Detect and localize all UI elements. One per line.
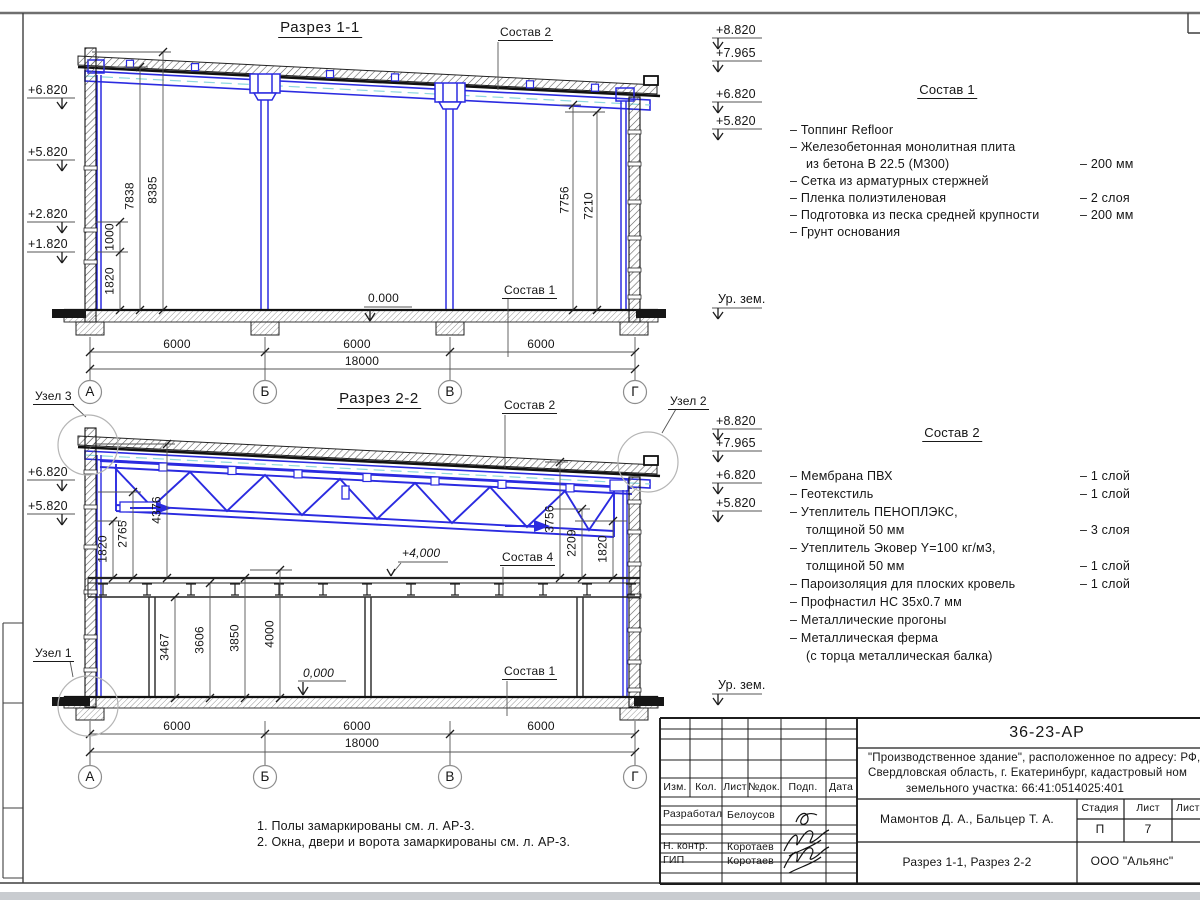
dim-label: 2765 xyxy=(117,520,130,548)
role-label: Н. контр. xyxy=(663,841,708,852)
dim-label: 1820 xyxy=(597,535,610,563)
list-item-value: – 1 слой xyxy=(1080,578,1130,591)
dim-label: 3850 xyxy=(229,624,242,652)
grid-bubble-label: А xyxy=(78,385,102,399)
dim-label: 1820 xyxy=(104,267,117,295)
dim-label: 1000 xyxy=(104,223,117,251)
elevation-label: +6.820 xyxy=(716,469,756,482)
list-item: – Пароизоляция для плоских кровель xyxy=(790,578,1015,591)
level-mark-label: +4,000 xyxy=(402,547,440,560)
revision-col-header: Кол. xyxy=(695,782,717,793)
list-item: – Металлическая ферма xyxy=(790,632,938,645)
authors-label: Мамонтов Д. А., Бальцер Т. А. xyxy=(880,813,1054,826)
project-description-line: "Производственное здание", расположенное… xyxy=(868,752,1200,764)
section-2-title: Разрез 2-2 xyxy=(337,391,421,409)
note-line: 1. Полы замаркированы см. л. АР-3. xyxy=(257,820,475,833)
list-item: толщиной 50 мм xyxy=(806,560,905,573)
list-item: – Сетка из арматурных стержней xyxy=(790,175,989,188)
list-item-value: – 3 слоя xyxy=(1080,524,1130,537)
person-name: Коротаев xyxy=(727,856,774,867)
list-item-value: – 1 слой xyxy=(1080,470,1130,483)
list-item: – Профнастил НС 35х0.7 мм xyxy=(790,596,962,609)
elevation-label: +7.965 xyxy=(716,437,756,450)
dim-label: 18000 xyxy=(345,355,379,368)
elevation-label: +6.820 xyxy=(28,84,68,97)
list-item: – Геотекстиль xyxy=(790,488,874,501)
dim-label: 6000 xyxy=(163,338,191,351)
list-item: – Металлические прогоны xyxy=(790,614,947,627)
grid-bubble-label: А xyxy=(78,770,102,784)
list-item: – Железобетонная монолитная плита xyxy=(790,141,1015,154)
stage-value: П xyxy=(1096,823,1105,836)
list-item: (с торца металлическая балка) xyxy=(806,650,993,663)
revision-col-header: №док. xyxy=(748,782,780,793)
elevation-label: +8.820 xyxy=(716,415,756,428)
dim-label: 6000 xyxy=(163,720,191,733)
dim-label: 3756 xyxy=(544,505,557,533)
section-1-title: Разрез 1-1 xyxy=(278,20,362,38)
elevation-label: +7.965 xyxy=(716,47,756,60)
grid-bubble-label: В xyxy=(438,770,462,784)
sheet-header: Лист xyxy=(1136,803,1160,814)
organization-label: ООО "Альянс" xyxy=(1091,855,1174,868)
zero-level-label: 0.000 xyxy=(368,292,399,305)
role-label: Разработал xyxy=(663,809,722,820)
dim-label: 6000 xyxy=(527,720,555,733)
grid-bubble-label: Б xyxy=(253,385,277,399)
grid-bubble-label: Б xyxy=(253,770,277,784)
callout-sostav2-s1: Состав 2 xyxy=(498,26,553,41)
dim-label: 3467 xyxy=(159,633,172,661)
dim-label: 4000 xyxy=(264,620,277,648)
section-1-1-structure xyxy=(52,48,666,335)
dim-label: 7756 xyxy=(559,186,572,214)
list-item-value: – 200 мм xyxy=(1080,209,1134,222)
zero-level-label: 0,000 xyxy=(303,667,334,680)
dim-label: 8385 xyxy=(147,176,160,204)
project-description-line: Свердловская область, г. Екатеринбург, к… xyxy=(868,767,1187,779)
dim-label: 7838 xyxy=(124,182,137,210)
sheets-header: Листов xyxy=(1176,803,1200,814)
elevation-label: +5.820 xyxy=(716,497,756,510)
list-item-value: – 2 слоя xyxy=(1080,192,1130,205)
list-item: из бетона В 22.5 (М300) xyxy=(806,158,949,171)
section-2-2-structure xyxy=(52,428,664,720)
list-item: – Мембрана ПВХ xyxy=(790,470,893,483)
sheet-title-label: Разрез 1-1, Разрез 2-2 xyxy=(903,856,1032,869)
drawing-sheet: Разрез 1-1 Состав 2 Состав 1 +6.820 +5.8… xyxy=(0,0,1200,900)
dim-label: 18000 xyxy=(345,737,379,750)
list-item: – Подготовка из песка средней крупности xyxy=(790,209,1039,222)
elevation-label: +2.820 xyxy=(28,208,68,221)
list-item-value: – 200 мм xyxy=(1080,158,1134,171)
revision-col-header: Лист xyxy=(723,782,747,793)
composition-1-title: Состав 1 xyxy=(917,83,977,99)
elevation-label: +6.820 xyxy=(28,466,68,479)
dim-label: 2209 xyxy=(566,529,579,557)
node-label: Узел 2 xyxy=(668,395,709,410)
role-label: ГИП xyxy=(663,855,684,866)
list-item: – Топпинг Refloor xyxy=(790,124,893,137)
document-number: 36-23-АР xyxy=(1009,725,1085,742)
dim-label: 6000 xyxy=(343,338,371,351)
ground-level-label: Ур. зем. xyxy=(718,679,766,692)
composition-2-title: Состав 2 xyxy=(922,426,982,442)
revision-col-header: Изм. xyxy=(663,782,686,793)
elevation-label: +6.820 xyxy=(716,88,756,101)
dim-label: 6000 xyxy=(343,720,371,733)
list-item: – Утеплитель Эковер Y=100 кг/м3, xyxy=(790,542,996,555)
dim-label: 1820 xyxy=(97,535,110,563)
grid-bubble-label: Г xyxy=(623,385,647,399)
revision-col-header: Подп. xyxy=(789,782,818,793)
drawing-canvas xyxy=(0,0,1200,900)
list-item: – Пленка полиэтиленовая xyxy=(790,192,946,205)
node-label: Узел 1 xyxy=(33,647,74,662)
grid-bubble-label: В xyxy=(438,385,462,399)
dim-label: 3606 xyxy=(194,626,207,654)
elevation-label: +1.820 xyxy=(28,238,68,251)
dim-label: 7210 xyxy=(583,192,596,220)
list-item: толщиной 50 мм xyxy=(806,524,905,537)
stage-header: Стадия xyxy=(1082,803,1119,814)
callout-sostav4-s2: Состав 4 xyxy=(500,551,555,566)
callout-sostav2-s2: Состав 2 xyxy=(502,399,557,414)
note-line: 2. Окна, двери и ворота замаркированы см… xyxy=(257,836,570,849)
node-label: Узел 3 xyxy=(33,390,74,405)
list-item: – Грунт основания xyxy=(790,226,900,239)
person-name: Белоусов xyxy=(727,810,775,821)
callout-sostav1-s2: Состав 1 xyxy=(502,665,557,680)
elevation-label: +8.820 xyxy=(716,24,756,37)
grid-bubble-label: Г xyxy=(623,770,647,784)
ground-level-label: Ур. зем. xyxy=(718,293,766,306)
revision-col-header: Дата xyxy=(829,782,853,793)
list-item: – Утеплитель ПЕНОПЛЭКС, xyxy=(790,506,958,519)
elevation-label: +5.820 xyxy=(28,500,68,513)
person-name: Коротаев xyxy=(727,842,774,853)
callout-sostav1-s1: Состав 1 xyxy=(502,284,557,299)
elevation-label: +5.820 xyxy=(716,115,756,128)
dim-label: 4376 xyxy=(151,496,164,524)
list-item-value: – 1 слой xyxy=(1080,560,1130,573)
list-item-value: – 1 слой xyxy=(1080,488,1130,501)
project-description-line: земельного участка: 66:41:0514025:401 xyxy=(906,783,1124,795)
sheet-value: 7 xyxy=(1145,823,1152,836)
dim-label: 6000 xyxy=(527,338,555,351)
elevation-label: +5.820 xyxy=(28,146,68,159)
